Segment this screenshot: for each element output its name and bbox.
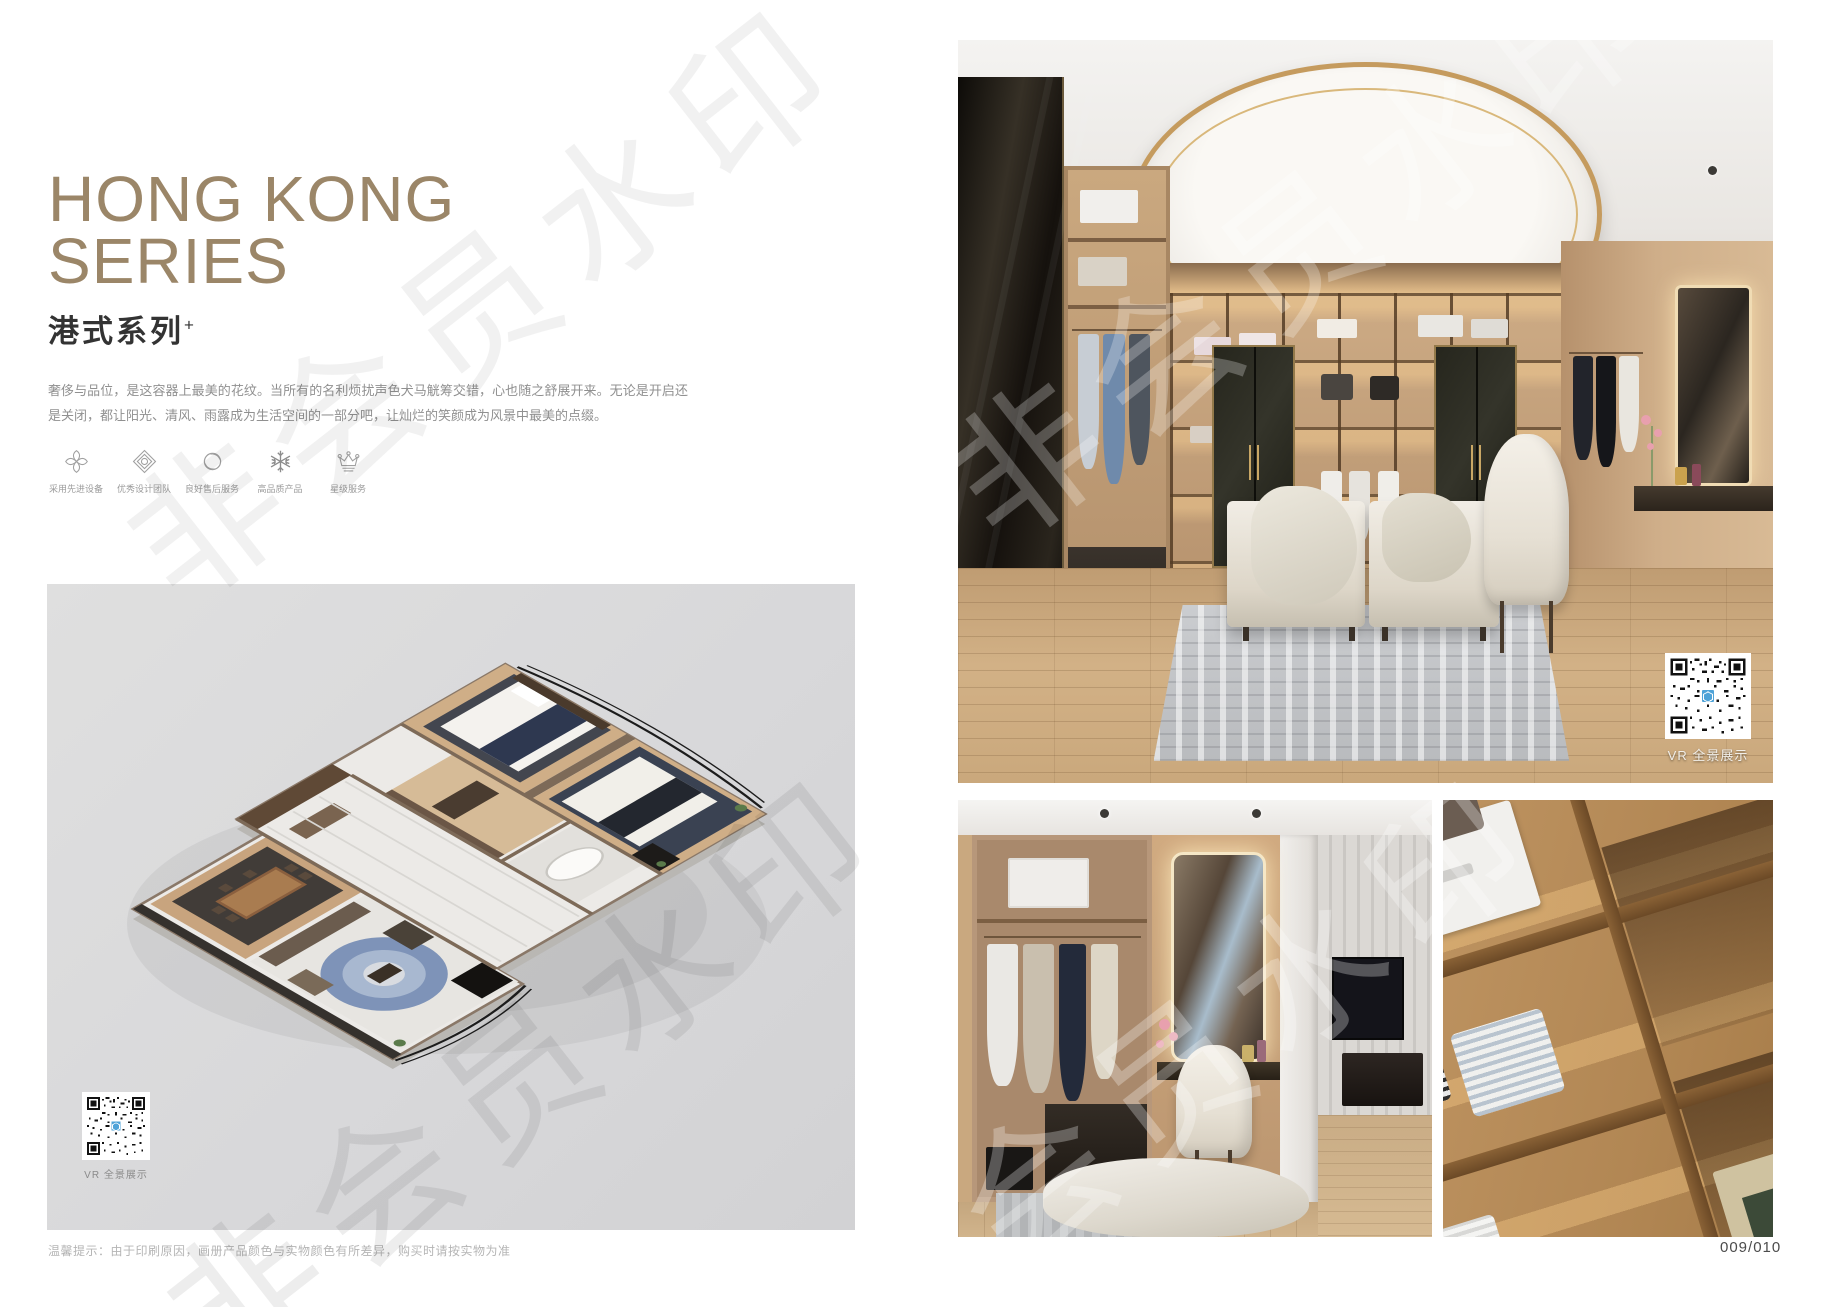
downlight: [1252, 809, 1261, 818]
qr-pattern: [1668, 656, 1748, 736]
series-title-line2: SERIES: [48, 230, 455, 292]
feature-label: 星级服务: [320, 482, 376, 495]
folded-stack: [1078, 257, 1127, 286]
draped-throw: [1382, 493, 1472, 582]
chair-leg: [1549, 601, 1553, 653]
vanity-mirror: [1675, 285, 1752, 486]
sideboard: [1342, 1053, 1423, 1105]
series-subtitle-text: 港式系列: [48, 314, 184, 349]
perfume-bottle: [1692, 464, 1702, 486]
folded-shirts: [1443, 1214, 1525, 1237]
handbag: [1321, 374, 1354, 399]
shelf-board: [1068, 305, 1166, 309]
white-case: [1443, 800, 1541, 951]
hanging-dress: [1023, 944, 1054, 1094]
white-pillar: [1280, 835, 1318, 1237]
vanity-chair: [1484, 434, 1570, 605]
vanity-nook-photo: [958, 800, 1432, 1237]
flowers: [1654, 429, 1662, 437]
series-subtitle-cn: 港式系列+: [48, 306, 197, 351]
ottoman-leg: [1349, 627, 1355, 641]
hanging-blouse: [987, 944, 1018, 1087]
feature-row: 采用先进设备 优秀设计团队 良好售后服务 高品质产品 星级服务: [48, 448, 376, 495]
isometric-floorplan-illustration: [67, 594, 835, 1154]
open-wardrobe: [972, 835, 1152, 1202]
floorplan-vr-qr-code: [82, 1092, 150, 1160]
feature-label: 优秀设计团队: [116, 482, 172, 495]
hanging-rod: [1072, 329, 1162, 331]
floorplan-panel: VR 全景展示: [47, 584, 855, 1230]
vanity-chair: [1176, 1045, 1252, 1159]
tilted-shelf-unit: [1443, 800, 1773, 1237]
flower-stem: [1651, 426, 1653, 485]
vanity-counter: [1634, 486, 1773, 511]
flowers: [1169, 1032, 1178, 1041]
empty-shelf-cell: [1601, 800, 1773, 1047]
hanging-shirt: [1129, 334, 1151, 464]
hanging-coat: [1573, 356, 1593, 460]
feature-advanced-equipment: 采用先进设备: [48, 448, 104, 495]
pinwheel-icon: [63, 448, 90, 475]
storage-box: [1418, 315, 1463, 337]
shelf-board: [977, 919, 1147, 923]
door-handle: [1479, 445, 1481, 480]
hanging-shirt: [1103, 334, 1125, 484]
case-handle: [1443, 863, 1474, 887]
hanging-shirt: [1619, 356, 1639, 453]
footer-disclaimer: 温馨提示：由于印刷原因，画册产品颜色与实物颜色有所差异，购买时请按实物为准: [48, 1242, 511, 1259]
qr-pattern: [85, 1095, 147, 1157]
corridor-floor: [1318, 1115, 1432, 1237]
black-box: [986, 1147, 1034, 1190]
feature-label: 良好售后服务: [184, 482, 240, 495]
case-textile: [1443, 800, 1485, 856]
series-subtitle-plus: +: [184, 316, 197, 335]
perfume-bottle: [1242, 1045, 1253, 1062]
feature-label: 高品质产品: [252, 482, 308, 495]
series-title: HONG KONG SERIES: [48, 168, 455, 292]
hanging-shirt: [1078, 334, 1100, 469]
shelf-board: [1068, 238, 1166, 242]
floorplan-vr-label: VR 全景展示: [77, 1166, 155, 1181]
storage-box: [1008, 858, 1090, 908]
door-handle: [1249, 445, 1251, 480]
bag-print: [1741, 1186, 1773, 1237]
ottoman-leg: [1382, 627, 1388, 641]
door-handle: [1471, 445, 1473, 480]
handbag: [1370, 376, 1399, 400]
feature-star-service: 星级服务: [320, 448, 376, 495]
series-title-line1: HONG KONG: [48, 168, 455, 230]
folded-shirts: [1449, 1008, 1565, 1118]
feature-after-sales: 良好售后服务: [184, 448, 240, 495]
crown-icon: [335, 448, 362, 475]
ceiling: [958, 800, 1432, 835]
folded-sweaters: [1443, 1005, 1452, 1120]
chair-leg: [1500, 601, 1504, 653]
storage-box: [1317, 319, 1358, 338]
series-description: 奢侈与品位，是这容器上最美的花纹。当所有的名利烦扰声色犬马觥筹交错，心也随之舒展…: [48, 378, 688, 428]
shelf-closeup-photo: [1443, 800, 1773, 1237]
feature-design-team: 优秀设计团队: [116, 448, 172, 495]
main-closet-photo: VR 全景展示: [958, 40, 1773, 783]
ottoman-leg: [1243, 627, 1249, 641]
rosette-icon: [131, 448, 158, 475]
hanging-top: [1091, 944, 1118, 1080]
page-number: 009/010: [1720, 1239, 1781, 1256]
ottoman-leg: [1480, 627, 1486, 641]
hanging-coat: [1596, 356, 1616, 467]
snowflake-icon: [267, 448, 294, 475]
lit-mirror: [1171, 852, 1266, 1062]
flowers: [1159, 1019, 1170, 1030]
downlight: [1100, 809, 1109, 818]
back-wall-top-glow: [1170, 263, 1561, 293]
hanging-rod: [1569, 352, 1642, 354]
feature-label: 采用先进设备: [48, 482, 104, 495]
perfume-bottle: [1675, 467, 1686, 485]
hanging-rod: [984, 936, 1141, 938]
door-handle: [1257, 445, 1259, 480]
main-vr-label: VR 全景展示: [1648, 745, 1768, 764]
main-vr-qr-code: [1665, 653, 1751, 739]
ring-icon: [199, 448, 226, 475]
storage-box: [1471, 319, 1508, 338]
hanging-dress: [1059, 944, 1086, 1101]
area-rug: [1154, 605, 1570, 761]
perfume-bottle: [1257, 1040, 1266, 1062]
tv-screen: [1332, 957, 1403, 1040]
folded-stack: [1080, 190, 1139, 224]
feature-high-quality: 高品质产品: [252, 448, 308, 495]
